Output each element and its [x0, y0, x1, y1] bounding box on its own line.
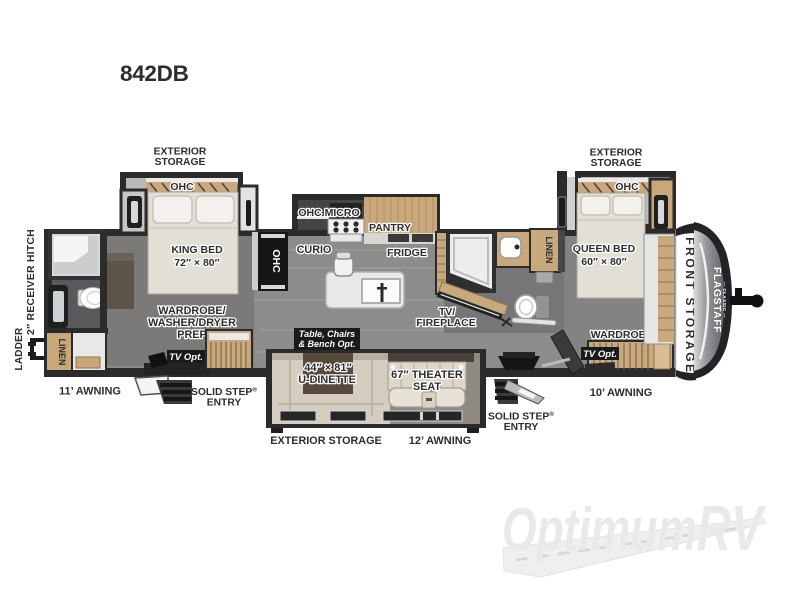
svg-text:PANTRY: PANTRY	[369, 222, 411, 234]
svg-text:842DB: 842DB	[120, 61, 189, 86]
svg-text:EXTERIOR STORAGE: EXTERIOR STORAGE	[270, 435, 381, 447]
svg-text:10’ AWNING: 10’ AWNING	[590, 387, 653, 399]
svg-text:FLAGSTAFF: FLAGSTAFF	[711, 267, 723, 333]
svg-text:LADDER: LADDER	[14, 327, 25, 370]
svg-text:Table, Chairs: Table, Chairs	[299, 329, 355, 339]
svg-text:TV Opt.: TV Opt.	[583, 349, 617, 360]
svg-text:QUEEN BED: QUEEN BED	[573, 243, 636, 255]
svg-text:STORAGE: STORAGE	[155, 157, 206, 168]
svg-text:12’ AWNING: 12’ AWNING	[409, 435, 472, 447]
svg-text:FIREPLACE: FIREPLACE	[416, 317, 476, 329]
svg-text:72″ × 80″: 72″ × 80″	[174, 257, 219, 269]
svg-text:OHC MICRO: OHC MICRO	[298, 207, 359, 219]
svg-text:EXTERIOR: EXTERIOR	[590, 148, 643, 159]
svg-text:— CLASSIC —: — CLASSIC —	[722, 282, 727, 319]
svg-text:SOLID STEP®: SOLID STEP®	[191, 386, 257, 399]
svg-text:OHC: OHC	[170, 181, 194, 193]
svg-text:LINEN: LINEN	[544, 237, 554, 264]
svg-text:60″ × 80″: 60″ × 80″	[581, 256, 626, 268]
svg-text:LINEN: LINEN	[57, 339, 67, 366]
svg-text:67″ THEATER: 67″ THEATER	[391, 369, 463, 381]
svg-text:KING BED: KING BED	[171, 244, 223, 256]
svg-text:STORAGE: STORAGE	[591, 158, 642, 169]
svg-text:ENTRY: ENTRY	[207, 398, 242, 409]
svg-text:U-DINETTE: U-DINETTE	[298, 374, 356, 386]
svg-text:EXTERIOR: EXTERIOR	[154, 147, 207, 158]
svg-text:& Bench Opt.: & Bench Opt.	[298, 339, 355, 349]
svg-text:WARDROBE/: WARDROBE/	[158, 305, 225, 317]
svg-text:OHC: OHC	[615, 181, 639, 193]
svg-text:TV Opt.: TV Opt.	[169, 352, 203, 363]
svg-text:OptimumRV: OptimumRV	[502, 492, 766, 564]
svg-text:2″ RECEIVER HITCH: 2″ RECEIVER HITCH	[25, 229, 37, 335]
svg-text:WASHER/DRYER: WASHER/DRYER	[148, 317, 236, 329]
svg-text:OHC: OHC	[270, 249, 282, 273]
svg-text:SOLID STEP®: SOLID STEP®	[488, 410, 554, 423]
svg-text:CURIO: CURIO	[297, 244, 332, 256]
svg-text:ENTRY: ENTRY	[504, 422, 539, 433]
svg-text:11’ AWNING: 11’ AWNING	[59, 386, 121, 398]
svg-text:44″ × 81″: 44″ × 81″	[304, 362, 352, 374]
svg-text:FRIDGE: FRIDGE	[387, 247, 427, 259]
svg-text:PREP: PREP	[177, 329, 206, 341]
svg-text:SEAT: SEAT	[413, 381, 441, 393]
